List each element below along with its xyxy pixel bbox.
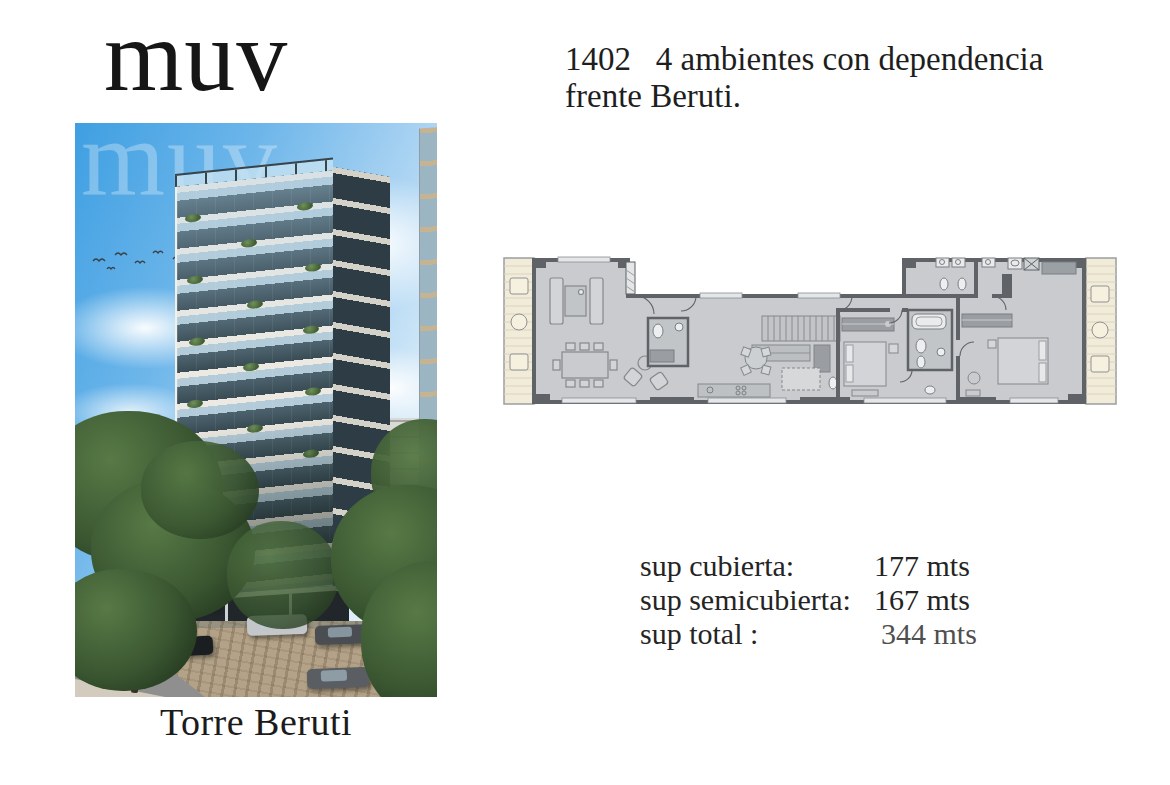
surface-value: 167 mts (874, 583, 970, 617)
surface-label: sup total : (640, 617, 874, 651)
unit-headline-line1: 1402 4 ambientes con dependencia (565, 41, 1043, 78)
guest-bathroom (648, 318, 688, 366)
tree (227, 521, 339, 629)
surface-row: sup total : 344 mts (640, 617, 977, 651)
unit-headline: 1402 4 ambientes con dependencia frente … (565, 41, 1043, 115)
building-photo: muv (75, 123, 437, 697)
corner-window (626, 262, 635, 294)
tree (141, 441, 259, 539)
balcony-right (1086, 258, 1116, 404)
surface-row: sup cubierta: 177 mts (640, 549, 977, 583)
brand-logo: muv (104, 2, 288, 109)
unit-headline-line2: frente Beruti. (565, 78, 1043, 115)
listing-sheet: muv 1402 4 ambientes con dependencia fre… (0, 0, 1170, 785)
surface-value: 344 mts (874, 617, 977, 651)
photo-caption: Torre Beruti (75, 700, 437, 744)
surface-value: 177 mts (874, 549, 970, 583)
balcony-left (504, 258, 534, 404)
surface-label: sup cubierta: (640, 549, 874, 583)
parked-car (307, 667, 370, 689)
floor-plan (500, 252, 1120, 410)
surface-label: sup semicubierta: (640, 583, 874, 617)
surface-row: sup semicubierta: 167 mts (640, 583, 977, 617)
surface-summary: sup cubierta: 177 mts sup semicubierta: … (640, 549, 977, 651)
